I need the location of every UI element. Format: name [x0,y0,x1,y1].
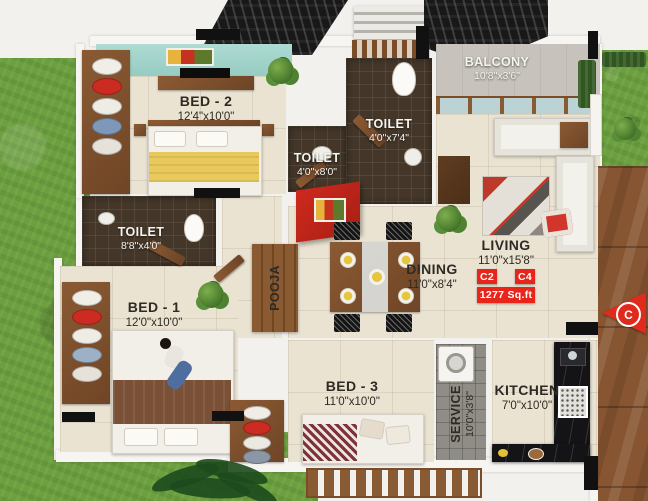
service-label: SERVICE 10'0"x3'8" [448,385,478,442]
living-rug [482,176,550,236]
wall-pillar [196,29,240,40]
wardrobe-pillow [243,421,271,435]
toilet-bowl [184,214,204,242]
wardrobe-pillow [72,328,102,344]
wardrobe-pillow [72,347,102,363]
wash-basin [404,148,422,166]
wardrobe-pillow [92,58,122,75]
bed-pillow [196,131,228,147]
wardrobe-pillow [72,309,102,325]
tv-screen [180,68,230,78]
bed-pillow [124,428,158,446]
wall-pillar [62,412,95,422]
toilet-left-label: TOILET 8'8"x4'0" [118,224,165,254]
side-console [560,122,588,148]
wardrobe-pillow [72,366,102,382]
wall-pillar [416,26,429,59]
bed2-wall-picture [166,48,214,66]
media-unit [438,156,470,204]
balcony-label: BALCONY 10'8"x3'6" [465,54,530,84]
toilet-top-label: TOILET 4'0"x7'4" [366,116,413,146]
unit-type-badge-c4: C4 [515,269,535,284]
wall-pillar [194,188,240,198]
sofa-right [556,156,594,252]
bedside-table [262,124,274,136]
dining-chair [386,314,412,332]
food-plate [528,448,544,460]
wardrobe-pillow [92,118,122,135]
dining-label: DINING 11'0"x8'4" [406,260,457,293]
service-grill-door [306,468,482,498]
toilet-mid-label: TOILET 4'0"x8'0" [294,150,341,180]
stove-hob [558,386,588,418]
wardrobe-pillow [72,290,102,306]
plate [340,288,356,304]
floor-plan-scene: C BED - 2 12'4"x10'0" TOILET 4'0"x7'4" T… [0,0,648,501]
wall-pillar [212,411,244,421]
wardrobe-pillow [92,98,122,115]
wall-pillar [584,456,598,490]
hedge-right [602,52,646,67]
bedside-table [134,124,146,136]
sink-faucet [568,351,577,360]
dining-chair [334,314,360,332]
bed-pillow [359,418,386,440]
bed2-blanket [149,152,259,182]
bush-right-lawn [614,118,636,140]
entry-marker: C [616,302,641,327]
wall-art [314,198,346,222]
tv-console [158,76,254,90]
bed-pillow [154,131,186,147]
wardrobe-pillow [243,436,271,450]
bed2-label: BED - 2 12'4"x10'0" [178,92,235,125]
unit-type-badge-c2: C2 [477,269,497,284]
tv-panel [590,94,602,156]
grass-right [600,50,648,172]
bed3-blanket [303,424,357,461]
wardrobe-pillow [243,450,271,464]
unit-area-badge: 1277 Sq.ft [477,287,535,303]
plant-living [436,206,462,232]
plant-bed2 [268,58,294,84]
kitchen-label: KITCHEN 7'0"x10'0" [494,381,559,414]
bed3-label: BED - 3 11'0"x10'0" [324,377,380,410]
wardrobe-pillow [92,78,122,95]
balcony-glass-doors [436,96,600,116]
bed-pillow [385,425,411,445]
dining-chair [386,222,412,240]
serving-bowl [368,268,386,286]
person-head [160,338,171,349]
plant-bed1 [198,282,224,308]
wash-basin [98,212,115,225]
toilet-bowl [392,62,416,96]
wardrobe-pillow [243,406,271,420]
dining-chair [334,222,360,240]
accent-chair [540,208,573,238]
bed1-label: BED - 1 12'0"x10'0" [126,298,183,331]
pooja-label: POOJA [267,265,283,311]
plate [340,252,356,268]
entry-marker-label: C [624,308,633,322]
washer-door [446,353,466,373]
wardrobe-pillow [92,138,122,155]
wall-pillar [588,31,598,59]
fruit [498,449,508,457]
bed-pillow [164,428,198,446]
living-label: LIVING 11'0"x15'8" [478,236,534,269]
